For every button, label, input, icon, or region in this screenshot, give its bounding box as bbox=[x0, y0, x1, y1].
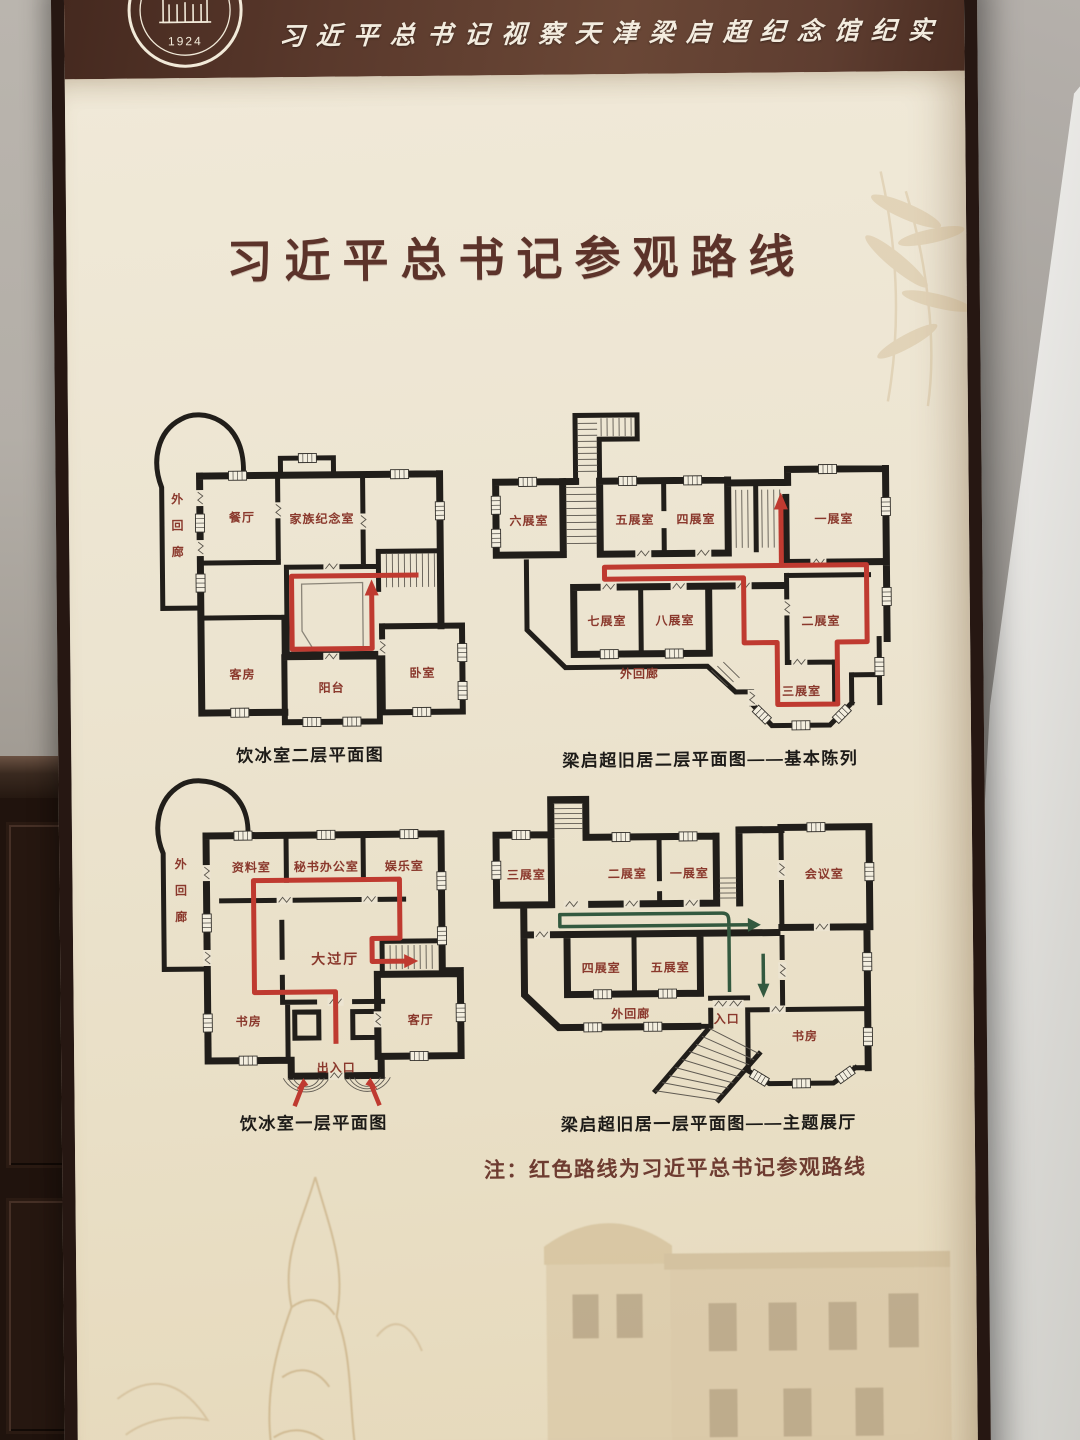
room-label: 阳台 bbox=[318, 680, 344, 695]
poster-paper: 习近平总书记参观路线 bbox=[65, 71, 978, 1440]
room-label: 四展室 bbox=[582, 960, 621, 975]
room-label: 二展室 bbox=[801, 613, 840, 628]
room-label: 三展室 bbox=[507, 867, 546, 882]
room-label: 资料室 bbox=[232, 859, 271, 874]
room-label: 六展室 bbox=[509, 513, 548, 528]
floor-plan-liangqichao-1f: 三展室 二展室 一展室 会议室 四展室 五展室 外回廊 入口 书房 bbox=[481, 786, 934, 1120]
memorial-seal: YINBINGSHI 1924 bbox=[118, 0, 251, 77]
svg-text:YINBINGSHI: YINBINGSHI bbox=[138, 0, 233, 2]
room-label: 外回廊 bbox=[171, 491, 185, 559]
skylight-outline bbox=[302, 583, 364, 650]
room-label: 四展室 bbox=[676, 511, 715, 526]
room-label: 会议室 bbox=[805, 866, 844, 881]
route-arrow-down bbox=[757, 984, 769, 998]
plan-caption: 梁启超旧居二层平面图——基本陈列 bbox=[490, 743, 930, 772]
tour-route-red bbox=[292, 575, 420, 649]
mountain-painting bbox=[115, 1176, 423, 1440]
floor-plan-yinbingshi-1f: 外回廊 资料室 秘书办公室 娱乐室 大过厅 书房 客厅 出入口 bbox=[140, 770, 483, 1113]
stairs bbox=[386, 553, 434, 587]
room-label: 七展室 bbox=[587, 613, 626, 628]
door-symbols bbox=[600, 548, 827, 707]
room-label: 五展室 bbox=[651, 959, 690, 974]
room-label: 一展室 bbox=[814, 511, 853, 526]
old-residence-photo bbox=[544, 1220, 953, 1440]
plan-caption: 饮冰室一层平面图 bbox=[144, 1107, 484, 1135]
banner-title: 习近平总书记视察天津梁启超纪念馆纪实 bbox=[278, 10, 955, 53]
floor-plan-yinbingshi-2f: 外回廊 餐厅 家族纪念室 客房 阳台 卧室 bbox=[137, 400, 480, 743]
room-label: 客厅 bbox=[407, 1012, 434, 1027]
room-label: 二展室 bbox=[608, 866, 647, 881]
door-symbols bbox=[202, 863, 382, 1081]
seal-arc-text: YINBINGSHI bbox=[138, 0, 233, 2]
room-label: 三展室 bbox=[782, 683, 821, 698]
room-label: 外回廊 bbox=[620, 666, 659, 681]
stairs bbox=[390, 945, 432, 969]
visitor-route-green bbox=[560, 913, 751, 994]
room-label: 八展室 bbox=[654, 612, 694, 627]
room-label: 五展室 bbox=[615, 512, 654, 527]
poster-board: YINBINGSHI 1924 习近平总书记视察天津梁启超纪念馆纪实 习近平总书… bbox=[51, 0, 991, 1440]
room-label: 书房 bbox=[236, 1014, 262, 1029]
room-label: 外回廊 bbox=[611, 1006, 650, 1021]
route-arrow-right bbox=[404, 954, 418, 968]
room-label: 一展室 bbox=[670, 865, 709, 880]
room-label: 家族纪念室 bbox=[289, 511, 354, 527]
page-title: 习近平总书记参观路线 bbox=[66, 219, 967, 294]
seal-year: 1924 bbox=[168, 34, 203, 48]
poster-banner: YINBINGSHI 1924 习近平总书记视察天津梁启超纪念馆纪实 bbox=[64, 0, 965, 79]
photo-scene: YINBINGSHI 1924 习近平总书记视察天津梁启超纪念馆纪实 习近平总书… bbox=[0, 0, 1080, 1440]
floor-plan-liangqichao-2f: 六展室 五展室 四展室 一展室 七展室 八展室 二展室 外回廊 三展室 bbox=[487, 406, 930, 750]
tour-route-red-exit bbox=[781, 505, 782, 565]
room-label: 餐厅 bbox=[229, 510, 255, 525]
seal-building-icon bbox=[159, 0, 211, 22]
room-label: 外回廊 bbox=[175, 856, 189, 924]
room-label: 出入口 bbox=[317, 1060, 356, 1075]
room-label: 入口 bbox=[714, 1012, 740, 1026]
plan-caption: 饮冰室二层平面图 bbox=[140, 739, 480, 767]
room-label: 秘书办公室 bbox=[294, 859, 359, 875]
room-label: 书房 bbox=[792, 1028, 818, 1043]
plan-caption: 梁启超旧居一层平面图——主题展厅 bbox=[484, 1107, 934, 1136]
room-label: 娱乐室 bbox=[385, 858, 424, 873]
room-label: 卧室 bbox=[409, 665, 435, 680]
room-label: 大过厅 bbox=[311, 951, 359, 967]
room-label: 客房 bbox=[228, 667, 255, 682]
legend-note: 注：红色路线为习近平总书记参观路线 bbox=[395, 1150, 955, 1185]
